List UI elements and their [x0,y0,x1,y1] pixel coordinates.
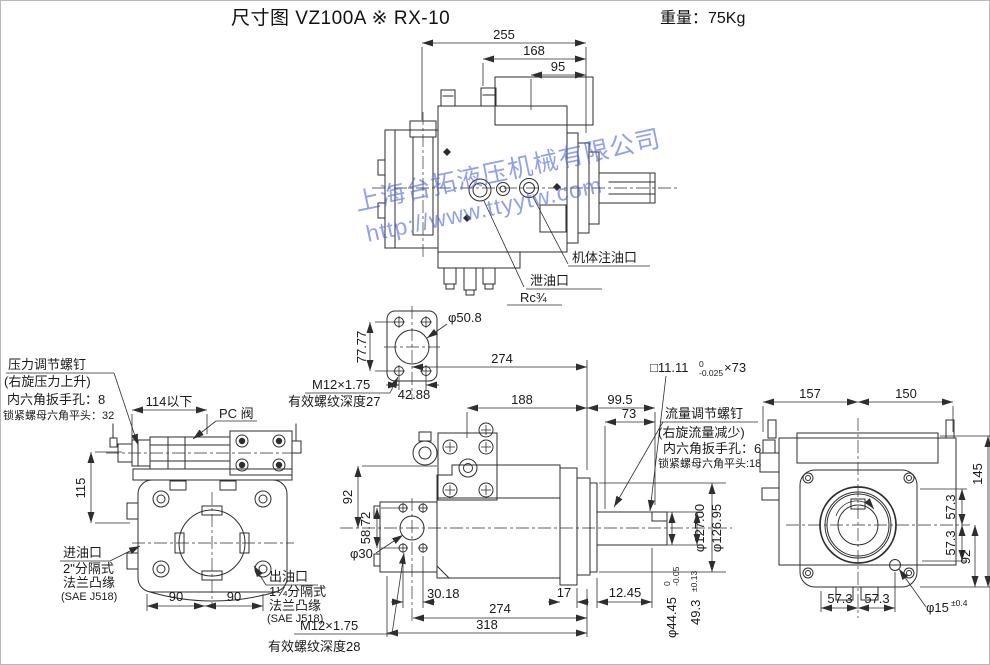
page-title: 尺寸图 VZ100A ※ RX-10 [231,7,450,29]
dim-49-3: 49.3 [688,600,703,625]
right-view [760,418,970,618]
dim-115: 115 [73,478,88,499]
dim-188: 188 [511,392,533,407]
pump-body-side [437,465,560,578]
dim-49-3-tol: ±0.13 [689,571,699,592]
fill-port-label: 机体注油口 [572,250,637,265]
port-plate [380,502,437,572]
flow-screw-locknut: 锁紧螺母六角平头:18 [658,456,761,470]
header: 尺寸图 VZ100A ※ RX-10 重量：75Kg [231,7,745,29]
shaft-side [597,512,667,545]
left-view-dimensions: 114以下 PC 阀 115 90 90 进油口 2"分隔式 法兰凸缘 (SAE… [60,394,326,625]
dim-274-top: 274 [491,351,513,366]
pc-valve-label: PC 阀 [219,406,254,421]
pressure-screw-hex: 内六角扳手孔：8 [7,392,105,407]
shaft-thread-depth-label: 有效螺纹深度28 [268,639,360,654]
dim-dia-15: φ15 [926,600,949,615]
dim-90-right: 90 [227,589,241,604]
dim-274-bottom: 274 [489,601,511,616]
inlet-sae-label: (SAE J518) [61,591,117,603]
flow-screw-labels: 流量调节螺钉 (右旋流量减少) 内六角扳手孔：6 锁紧螺母六角平头:18 [614,406,761,507]
outlet-port-label: 出油口 [269,569,308,584]
pressure-screw-labels: 压力调节螺钉 (右旋压力上升) 内六角扳手孔：8 锁紧螺母六角平头：32 [3,357,138,445]
dim-dia-15-tol: ±0.4 [951,598,968,608]
dim-168: 168 [523,43,545,58]
pressure-screw-note: (右旋压力上升) [4,374,91,389]
pump-face [138,480,287,592]
dimension-drawing-canvas: 尺寸图 VZ100A ※ RX-10 重量：75Kg [0,0,990,665]
dim-57-3-bottom-right: 57.3 [864,591,889,606]
keyway-length: ×73 [724,360,746,375]
dim-dia-126-95: φ126.95 [709,504,724,552]
dim-42-88: 42.88 [398,387,431,402]
flow-screw-title: 流量调节螺钉 [665,406,743,421]
dim-95: 95 [551,59,565,74]
flange-detail-view: 77.77 φ50.8 42.88 M12×1.75 有效螺纹深度27 [288,306,482,409]
dim-145: 145 [970,463,985,485]
dim-92-right: 92 [958,550,973,564]
dim-dia-44-45: φ44.45 [664,597,679,638]
flow-screw-hex: 内六角扳手孔：6 [663,441,761,456]
dim-92-center: 92 [340,490,355,504]
boss-circle [413,441,437,465]
drain-port-label: 泄油口 [530,273,569,288]
outlet-type-label: 1¼分隔式 [269,584,326,599]
dim-57-3-bottom-left: 57.3 [827,591,852,606]
dim-dia-30: φ30 [350,546,373,561]
drain-thread-label: Rc¾ [520,290,547,305]
dim-150: 150 [895,386,917,401]
inlet-port-label: 进油口 [63,545,102,560]
dim-57-3-right-lower: 57.3 [943,530,958,555]
dim-dia-50-8: φ50.8 [448,310,482,325]
dim-58-72: 58.72 [358,512,373,545]
dim-73: 73 [622,406,636,421]
inlet-flange-label: 法兰凸缘 [63,575,115,590]
pilot-hub [590,483,597,572]
weight-label: 重量：75Kg [660,9,745,27]
dim-30-18: 30.18 [427,586,460,601]
flange-thread-depth-label: 有效螺纹深度27 [288,394,380,409]
shaft-thread-label: M12×1.75 [300,618,358,633]
inlet-type-label: 2"分隔式 [63,561,114,576]
dim-318: 318 [476,617,498,632]
dim-90-left: 90 [169,589,183,604]
pressure-screw-locknut: 锁紧螺母六角平头：32 [3,408,114,422]
flange-bolt-holes [393,316,432,377]
keyway-tol-lower: -0.025 [699,368,723,378]
dim-157: 157 [799,386,821,401]
dim-77-77: 77.77 [354,331,369,364]
dim-dia-44-45-tol-lower: -0.05 [671,566,681,586]
watermark: 上海台拓液压机械有限公司 http://www.ttyytw.com [352,125,663,247]
dim-255: 255 [493,27,515,42]
top-flange-bolts [443,423,493,497]
flange-thread-label: M12×1.75 [312,377,370,392]
flow-screw-note: (右旋流量减少) [658,425,745,440]
dim-57-3-right-upper: 57.3 [943,494,958,519]
pressure-screw-title: 压力调节螺钉 [8,357,86,372]
dim-99-5: 99.5 [607,392,632,407]
keyway-spec: □11.11 [650,360,688,375]
rear-casing [779,438,956,565]
dim-17: 17 [557,585,571,600]
dim-12-45: 12.45 [609,585,642,600]
dim-114-max: 114以下 [146,394,193,409]
drawing-sheet: 尺寸图 VZ100A ※ RX-10 重量：75Kg [0,0,990,665]
outlet-flange-label: 法兰凸缘 [269,598,321,613]
